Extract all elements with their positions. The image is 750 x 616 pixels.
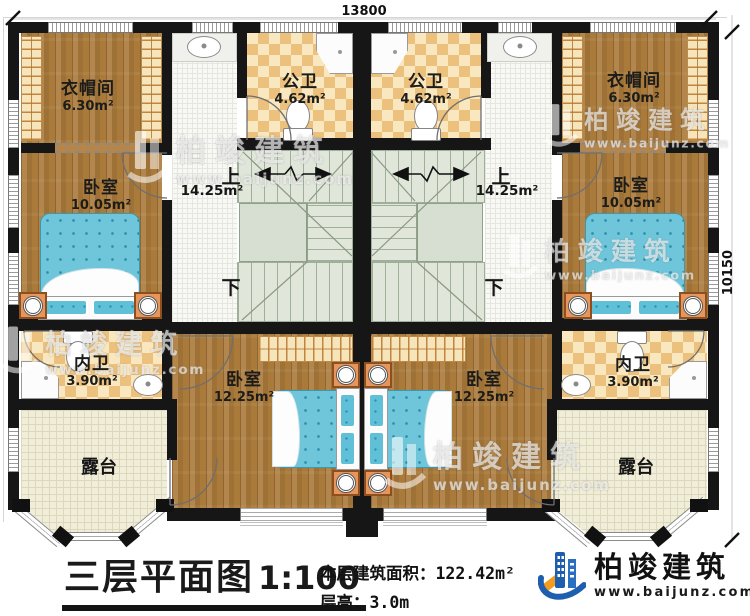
- wall: [547, 410, 557, 460]
- nightstand-icon: [564, 292, 592, 319]
- terrace-post: [156, 499, 174, 512]
- window: [708, 175, 719, 228]
- wall: [167, 410, 177, 460]
- brand-website: www.baijunz.com: [594, 585, 750, 600]
- room-label-cloakroom-left: 衣帽间6.30m²: [61, 80, 115, 114]
- wall: [547, 399, 719, 410]
- sink-icon: [561, 374, 591, 396]
- terrace-post: [690, 499, 708, 512]
- window: [498, 22, 532, 33]
- window-sill: [240, 521, 343, 526]
- nightstand-icon: [332, 470, 360, 496]
- stairs-flight: [237, 262, 353, 322]
- window-sill: [383, 521, 487, 526]
- room-label-cloakroom-right: 衣帽间6.30m²: [607, 72, 661, 106]
- wall: [8, 399, 177, 410]
- wall-opening: [55, 143, 140, 153]
- wardrobe-icon: [258, 336, 353, 362]
- floor-height-label: 层高：: [320, 589, 370, 613]
- stairs-flight: [371, 262, 485, 322]
- wall: [371, 322, 552, 334]
- wall: [172, 322, 353, 334]
- window: [708, 428, 719, 472]
- window: [708, 100, 719, 148]
- window: [260, 22, 338, 33]
- floor-plan-page: 柏竣建筑www.baijunz.com 柏竣建筑www.baijunz.com …: [0, 0, 750, 616]
- wardrobe-icon: [687, 36, 708, 141]
- room-label-public-bath-right: 公卫4.62m²: [400, 73, 451, 107]
- sink-icon: [133, 374, 163, 396]
- window: [8, 100, 19, 148]
- room-label-terrace-right: 露台: [618, 453, 654, 479]
- wardrobe-icon: [562, 36, 583, 141]
- room-label-bedroom-upper-right: 卧室10.05m²: [601, 177, 661, 211]
- nightstand-icon: [679, 292, 707, 319]
- wardrobe-icon: [21, 36, 42, 141]
- dimension-width: 13800: [341, 4, 386, 19]
- terrace-post: [12, 499, 30, 512]
- floor-height-value: 3.0m: [370, 593, 410, 612]
- stairs-landing: [417, 203, 483, 262]
- room-label-terrace-left: 露台: [81, 453, 117, 479]
- window: [48, 22, 133, 33]
- stairs-flight: [371, 203, 417, 262]
- window: [388, 22, 462, 33]
- brand-logo: 柏竣建筑 www.baijunz.com: [538, 548, 750, 604]
- stairs-area-right: 14.25m²: [476, 183, 539, 199]
- room-label-ensuite-left: 内卫3.90m²: [66, 355, 117, 389]
- wardrobe-icon: [141, 36, 162, 141]
- nightstand-icon: [19, 292, 47, 319]
- stairs-down-label-left: 下: [221, 273, 240, 300]
- window: [8, 253, 19, 305]
- stairs-flight: [307, 203, 353, 262]
- wall-opening: [580, 143, 666, 153]
- nightstand-icon: [134, 292, 162, 319]
- wall: [237, 33, 247, 98]
- nightstand-icon: [364, 362, 392, 388]
- room-label-ensuite-right: 内卫3.90m²: [607, 356, 658, 390]
- stairs-flight: [371, 150, 485, 203]
- room-label-public-bath-left: 公卫4.62m²: [274, 73, 325, 107]
- wardrobe-icon: [371, 336, 466, 362]
- room-label-bedroom-upper-left: 卧室10.05m²: [71, 179, 131, 213]
- stairs-landing: [239, 203, 307, 262]
- window: [708, 253, 719, 305]
- stairs-down-label-right: 下: [484, 273, 503, 300]
- nightstand-icon: [332, 362, 360, 388]
- floor-area-value: 122.42m²: [436, 564, 515, 583]
- brand-logo-icon: [538, 548, 586, 604]
- wall: [162, 200, 172, 399]
- brand-name: 柏竣建筑: [594, 552, 750, 582]
- nightstand-icon: [364, 470, 392, 496]
- window: [192, 22, 233, 33]
- wall: [552, 33, 562, 155]
- room-label-bedroom-lower-right: 卧室12.25m²: [454, 371, 514, 405]
- wall: [552, 200, 562, 399]
- floor-area-label: 本层建筑面积：: [320, 560, 436, 584]
- window: [240, 508, 343, 521]
- sink-icon: [503, 36, 537, 58]
- terrace-post: [542, 499, 560, 512]
- wall: [162, 33, 172, 155]
- dimension-height: 10150: [721, 250, 736, 295]
- window: [8, 175, 19, 228]
- window: [383, 508, 487, 521]
- floor-stats: 本层建筑面积：122.42m² 层高：3.0m: [320, 560, 515, 616]
- title-text: 三层平面图: [64, 548, 254, 600]
- window: [590, 22, 676, 33]
- room-label-bedroom-lower-left: 卧室12.25m²: [214, 371, 274, 405]
- stairs-flight: [237, 150, 353, 203]
- sink-icon: [187, 36, 221, 58]
- window: [8, 428, 19, 472]
- overhang-line: [3, 17, 4, 522]
- stairs-area-left: 14.25m²: [181, 183, 244, 199]
- wall: [167, 508, 557, 521]
- wall: [346, 521, 378, 537]
